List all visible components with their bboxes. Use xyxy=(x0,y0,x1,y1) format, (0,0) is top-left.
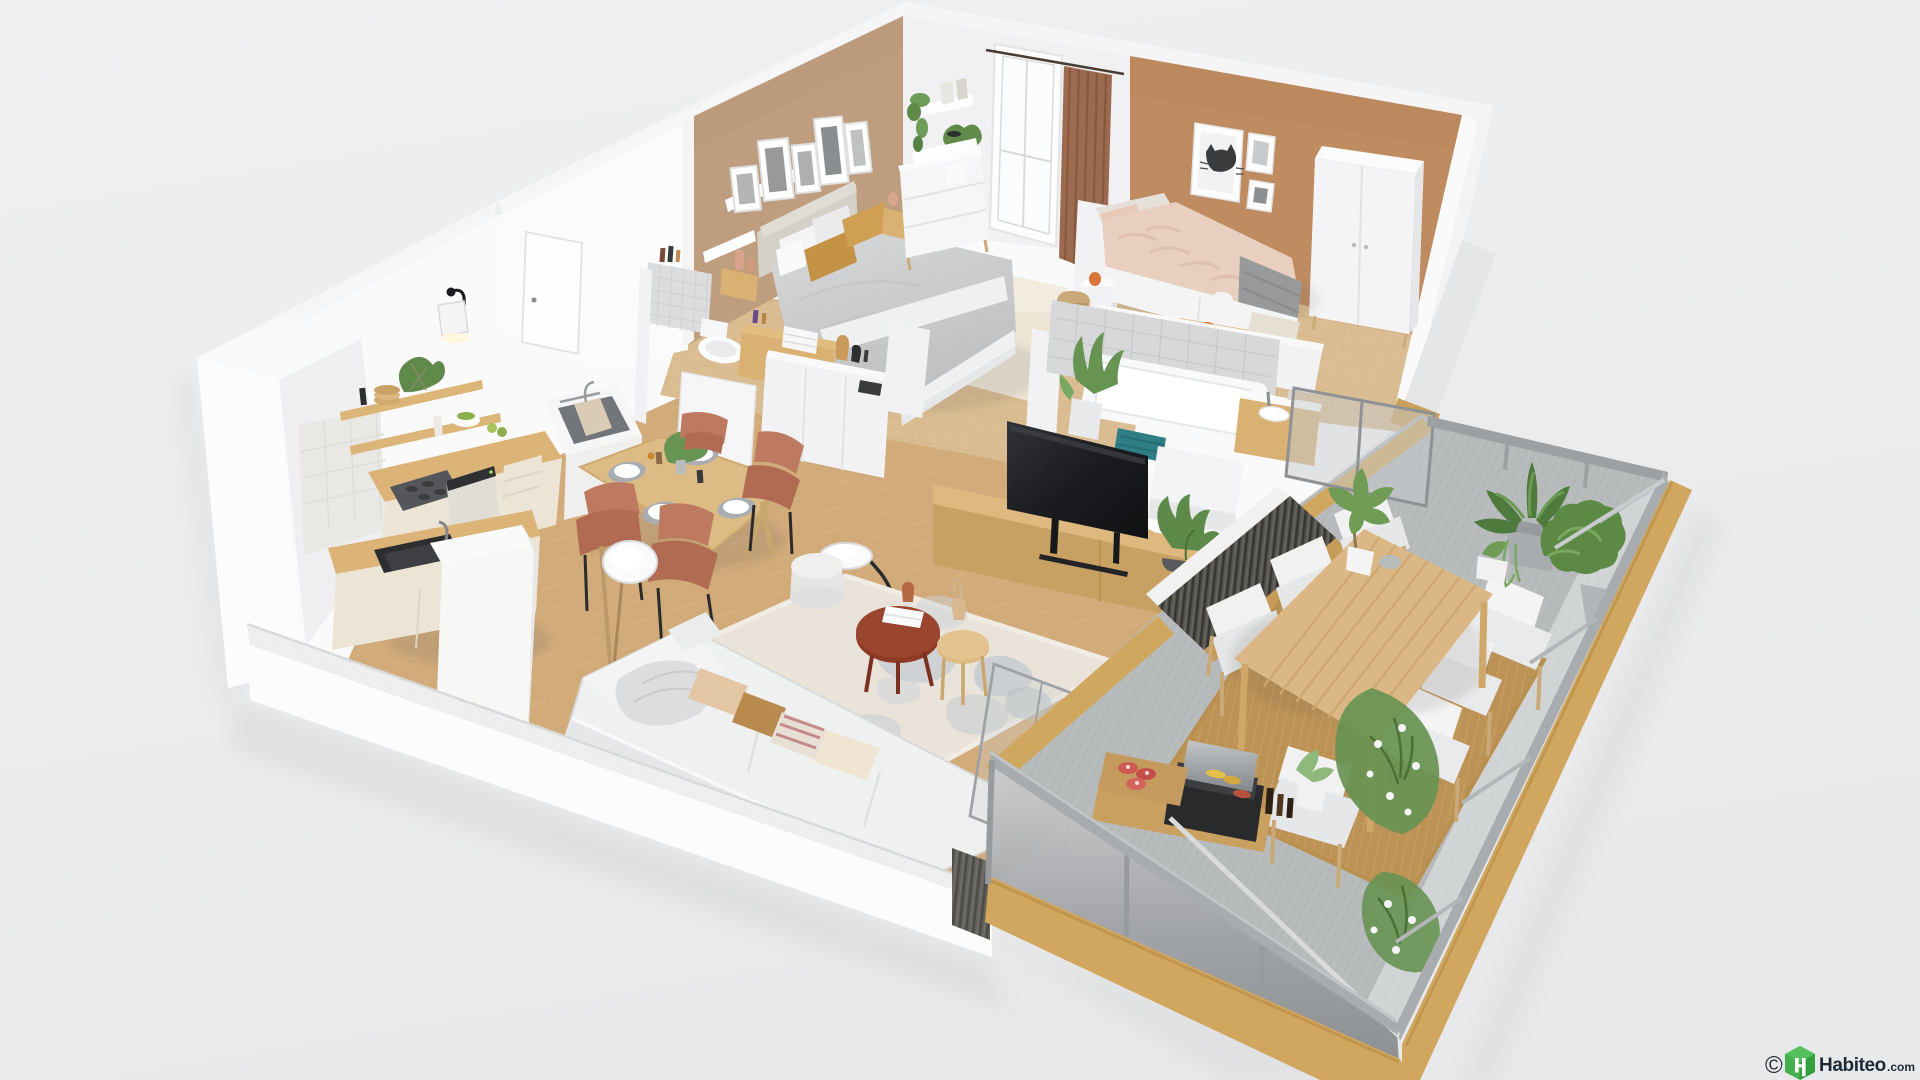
svg-text:©: © xyxy=(1765,1052,1783,1079)
svg-text:.com: .com xyxy=(1887,1060,1915,1074)
svg-text:Habiteo: Habiteo xyxy=(1819,1055,1886,1076)
